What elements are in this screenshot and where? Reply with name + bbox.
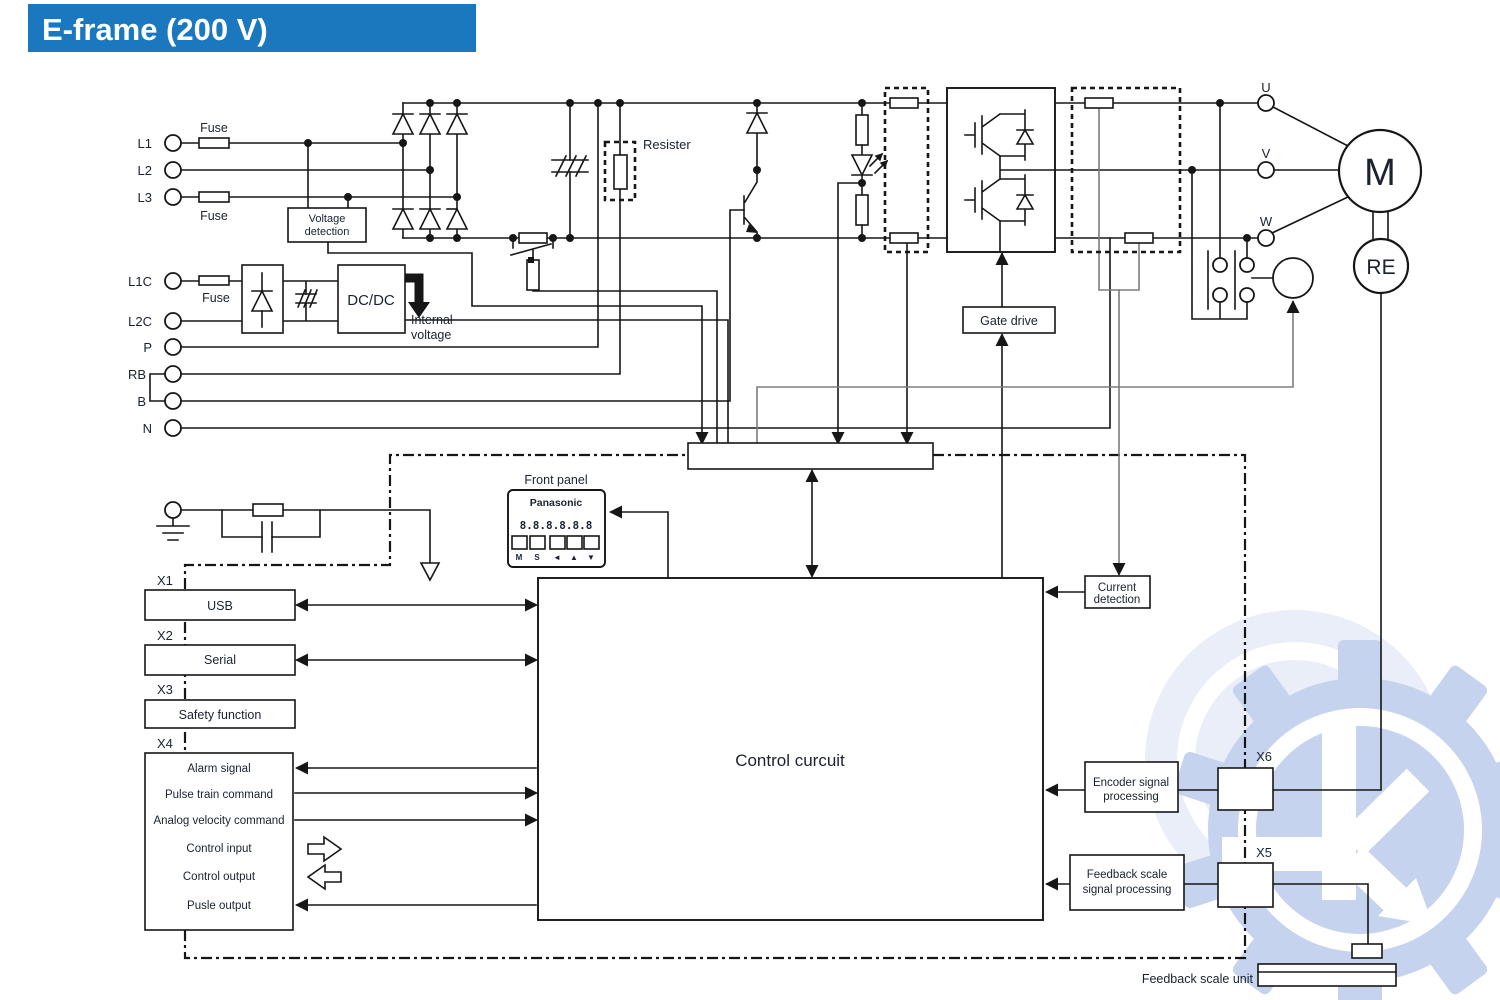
- encoder-processing-label: Encoder signal: [1093, 777, 1169, 789]
- terminal-ground: [165, 502, 181, 518]
- panel-button-label: ◄: [553, 553, 561, 562]
- discharge-resistor-symbol: [527, 260, 539, 290]
- terminal-rb: [165, 366, 181, 382]
- panel-button-up[interactable]: [567, 536, 582, 549]
- connector-label-x6: X6: [1256, 749, 1272, 764]
- x4-row-label: Pulse train command: [165, 789, 273, 801]
- panel-button-label: S: [534, 553, 540, 562]
- feedback-processing-box: [1070, 855, 1184, 910]
- fuse-l1c-symbol: [199, 276, 229, 285]
- fuse-label: Fuse: [200, 121, 228, 135]
- panel-button-left[interactable]: [550, 536, 565, 549]
- panel-button-s[interactable]: [530, 536, 545, 549]
- chassis-arrow-icon: [421, 563, 439, 580]
- shunt-resistor-symbol: [890, 98, 918, 108]
- brake-relay-coil: [1273, 258, 1313, 298]
- terminal-l2: [165, 162, 181, 178]
- front-panel: Panasonic 8.8.8.8.8.8 M S ◄ ▲ ▼: [508, 490, 605, 567]
- panel-button-label: ▼: [587, 553, 595, 562]
- fuse-label: Fuse: [202, 291, 230, 305]
- safety-function-label: Safety function: [179, 708, 262, 722]
- phase-label-v: V: [1262, 146, 1271, 161]
- panel-button-label: M: [516, 553, 523, 562]
- usb-label: USB: [207, 599, 233, 613]
- front-panel-label: Front panel: [524, 473, 587, 487]
- regen-resistor-symbol: [614, 155, 627, 189]
- x4-row-label: Control output: [183, 871, 256, 883]
- terminal-l1c: [165, 273, 181, 289]
- x4-row-label: Analog velocity command: [153, 815, 284, 827]
- terminal-v: [1258, 162, 1274, 178]
- dcdc-label: DC/DC: [347, 292, 395, 309]
- terminal-label-l1c: L1C: [128, 274, 152, 289]
- connector-label-x1: X1: [157, 573, 173, 588]
- terminal-label-l3: L3: [138, 190, 152, 205]
- fuse-label: Fuse: [200, 209, 228, 223]
- page-title: E-frame (200 V): [42, 12, 268, 47]
- relay-actuator-mark: [528, 257, 534, 263]
- seven-segment-display: 8.8.8.8.8.8: [520, 519, 593, 532]
- feedback-scale-unit-label: Feedback scale unit: [1142, 972, 1254, 986]
- shunt-resistor-symbol: [1125, 233, 1153, 243]
- motor-label: M: [1364, 152, 1396, 194]
- terminal-label-l2: L2: [138, 163, 152, 178]
- gate-drive-label: Gate drive: [980, 314, 1038, 328]
- scale-read-head: [1352, 944, 1382, 958]
- resistor-symbol: [856, 115, 868, 145]
- connector-label-x5: X5: [1256, 845, 1272, 860]
- serial-label: Serial: [204, 653, 236, 667]
- x6-connector-box: [1218, 768, 1273, 810]
- gear-logo-watermark: [1145, 610, 1500, 1000]
- brand-label: Panasonic: [530, 497, 583, 509]
- fuse-l1-symbol: [199, 138, 229, 148]
- current-sensor-dashed-box: [885, 88, 928, 252]
- diode-icon: [747, 113, 767, 133]
- panel-button-label: ▲: [570, 553, 578, 562]
- eframe-block-diagram: E-frame (200 V): [0, 0, 1500, 1000]
- resister-label: Resister: [643, 137, 691, 152]
- terminal-label-l1: L1: [138, 136, 152, 151]
- terminal-p: [165, 339, 181, 355]
- control-circuit-label: Control curcuit: [735, 751, 845, 770]
- terminal-l2c: [165, 313, 181, 329]
- fuse-l3-symbol: [199, 192, 229, 202]
- internal-voltage-label: Internal: [411, 313, 453, 327]
- panel-button-m[interactable]: [512, 536, 527, 549]
- panel-button-down[interactable]: [584, 536, 599, 549]
- connector-label-x2: X2: [157, 628, 173, 643]
- encoder-label: RE: [1366, 256, 1395, 279]
- ground-capacitor-icon: [262, 522, 272, 552]
- control-input-arrow-icon: [308, 837, 341, 861]
- current-detection-label: Current: [1098, 582, 1137, 594]
- voltage-detection-label: detection: [305, 226, 350, 238]
- terminal-label-l2c: L2C: [128, 314, 152, 329]
- shunt-resistor-symbol: [1085, 98, 1113, 108]
- voltage-detection-label: Voltage: [309, 213, 346, 225]
- connector-label-x3: X3: [157, 682, 173, 697]
- terminal-label-n: N: [143, 421, 152, 436]
- control-circuit-box: [538, 578, 1043, 920]
- internal-voltage-label: voltage: [411, 328, 451, 342]
- x5-connector-box: [1218, 863, 1273, 907]
- x4-row-label: Pusle output: [187, 900, 252, 912]
- shunt-resistor-symbol: [890, 233, 918, 243]
- terminal-label-rb: RB: [128, 367, 146, 382]
- internal-voltage-arrow-icon: [405, 278, 430, 318]
- terminal-u: [1258, 95, 1274, 111]
- terminal-l1: [165, 135, 181, 151]
- charge-led-icon: [852, 154, 887, 175]
- terminal-interface-bar: [688, 443, 933, 469]
- x4-row-label: Control input: [186, 843, 252, 855]
- inrush-resistor-symbol: [519, 233, 547, 243]
- feedback-processing-label: signal processing: [1083, 884, 1172, 896]
- dynamic-brake-contacts: [1213, 258, 1254, 302]
- ground-filter-resistor-symbol: [253, 504, 283, 516]
- terminal-label-b: B: [137, 394, 146, 409]
- resistor-symbol: [856, 195, 868, 225]
- connector-label-x4: X4: [157, 736, 173, 751]
- x4-row-label: Alarm signal: [187, 763, 250, 775]
- terminal-label-p: P: [143, 340, 152, 355]
- terminal-w: [1258, 230, 1274, 246]
- feedback-processing-label: Feedback scale: [1087, 869, 1168, 881]
- current-detection-label: detection: [1094, 594, 1141, 606]
- terminal-l3: [165, 189, 181, 205]
- terminal-n: [165, 420, 181, 436]
- phase-label-w: W: [1260, 214, 1273, 229]
- encoder-processing-label: processing: [1103, 791, 1159, 803]
- phase-label-u: U: [1261, 80, 1270, 95]
- terminal-b: [165, 393, 181, 409]
- feedback-scale-bar: [1258, 964, 1396, 986]
- control-output-arrow-icon: [308, 865, 341, 889]
- block-diagram-page: E-frame (200 V): [0, 0, 1500, 1000]
